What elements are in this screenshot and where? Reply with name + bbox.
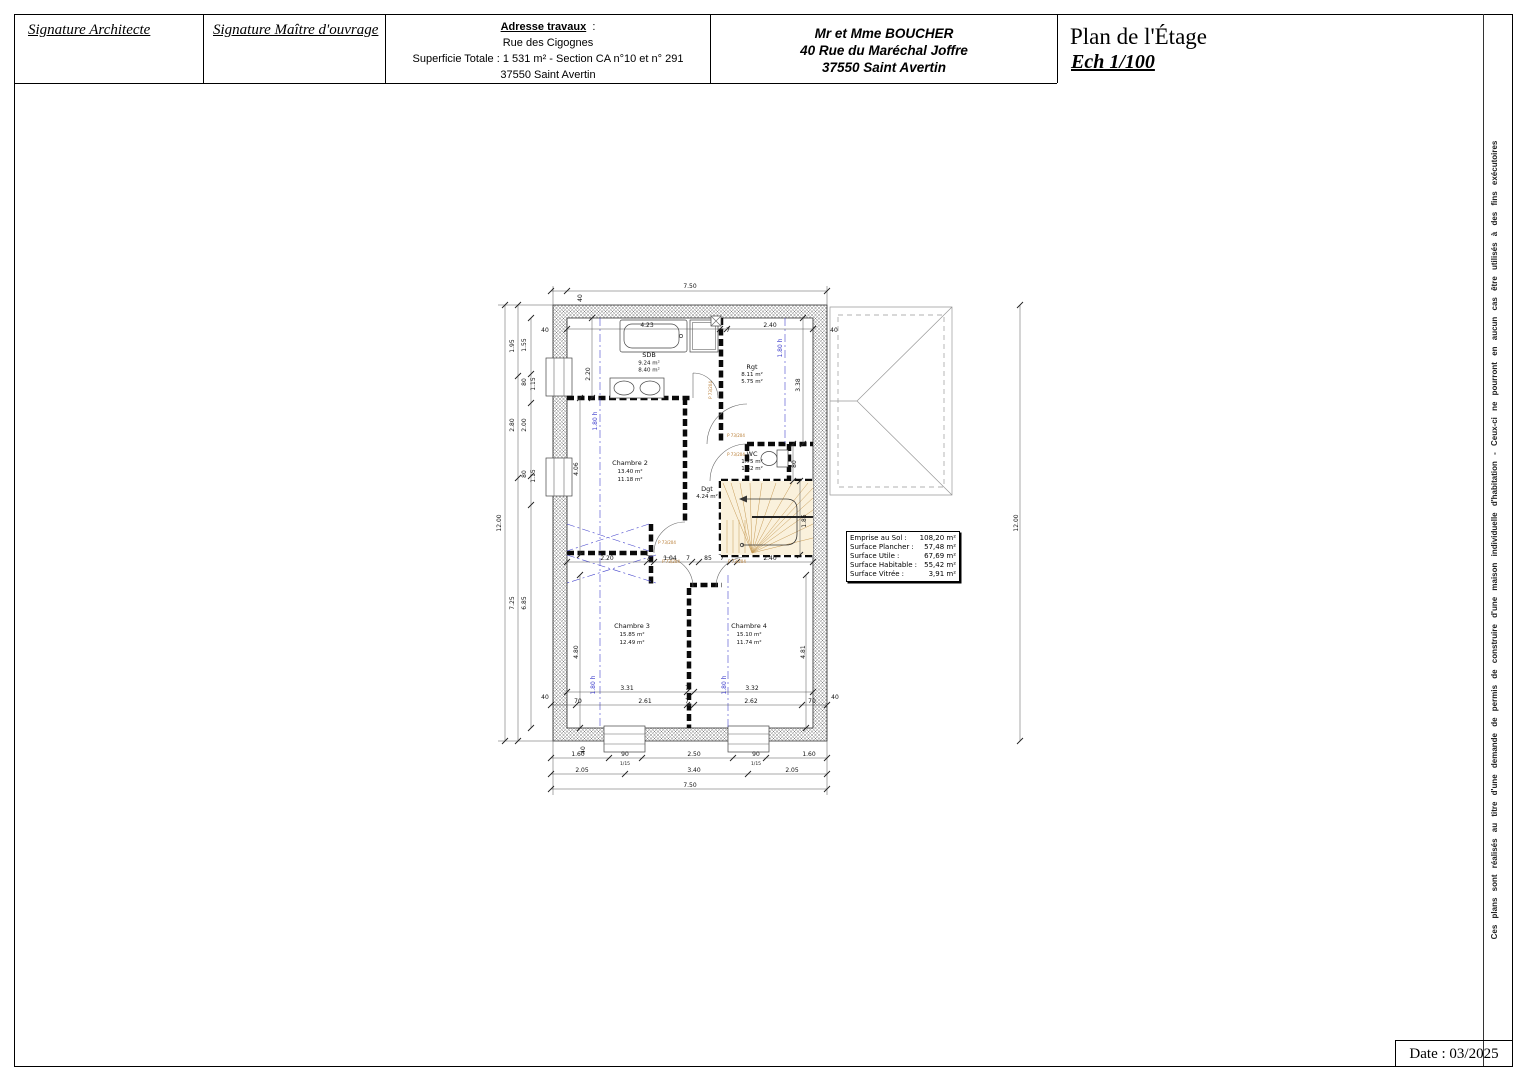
client-block: Mr et Mme BOUCHER 40 Rue du Maréchal Jof… (711, 25, 1057, 76)
surface-label: Surface Vitrée (850, 570, 900, 579)
scale-label: Ech 1/100 (1071, 51, 1155, 74)
address-heading-line: Adresse travaux : (386, 19, 710, 35)
colon: : (911, 543, 913, 552)
address-line: 37550 Saint Avertin (386, 67, 710, 83)
surface-row: Emprise au Sol : 108,20 m² (850, 534, 956, 543)
date-label: Date : 03/2025 (1409, 1046, 1498, 1063)
address-heading: Adresse travaux (501, 21, 587, 33)
address-line: Superficie Totale : 1 531 m² - Section C… (386, 51, 710, 67)
address-colon: : (592, 21, 595, 33)
surface-table: Emprise au Sol : 108,20 m² Surface Planc… (846, 531, 960, 582)
page-border (14, 14, 1513, 1067)
surface-row: Surface Habitable : 55,42 m² (850, 561, 956, 570)
colon: : (915, 561, 917, 570)
work-address-block: Adresse travaux : Rue des Cigognes Super… (386, 19, 710, 83)
date-box: Date : 03/2025 (1395, 1040, 1512, 1067)
colon: : (897, 552, 899, 561)
plan-sheet: 7.50 40 40 4.23 7 2.40 40 1.80 h 3.38 12… (0, 0, 1527, 1080)
title-block-divider (1057, 15, 1058, 83)
surface-value: 3,91 m² (929, 570, 956, 579)
colon: : (904, 534, 906, 543)
surface-row: Surface Vitrée : 3,91 m² (850, 570, 956, 579)
surface-row: Surface Plancher : 57,48 m² (850, 543, 956, 552)
surface-value: 55,42 m² (924, 561, 956, 570)
page-title: Plan de l'Étage (1070, 24, 1207, 50)
address-line: Rue des Cigognes (386, 35, 710, 51)
client-city: 37550 Saint Avertin (711, 59, 1057, 76)
signature-architect-label: Signature Architecte (28, 22, 150, 39)
surface-label: Emprise au Sol (850, 534, 902, 543)
title-block-divider (203, 15, 204, 83)
surface-value: 108,20 m² (920, 534, 956, 543)
title-block-bottom-line (14, 83, 1057, 84)
side-note-divider (1483, 14, 1484, 1066)
surface-label: Surface Plancher (850, 543, 909, 552)
surface-value: 57,48 m² (924, 543, 956, 552)
surface-row: Surface Utile : 67,69 m² (850, 552, 956, 561)
surface-value: 67,69 m² (924, 552, 956, 561)
legal-note: Ces plans sont réalisés au titre d'une d… (1490, 18, 1502, 1062)
surface-label: Surface Habitable (850, 561, 913, 570)
colon: : (902, 570, 904, 579)
client-name: Mr et Mme BOUCHER (711, 25, 1057, 42)
signature-owner-label: Signature Maître d'ouvrage (213, 22, 378, 39)
client-street: 40 Rue du Maréchal Joffre (711, 42, 1057, 59)
surface-label: Surface Utile (850, 552, 895, 561)
